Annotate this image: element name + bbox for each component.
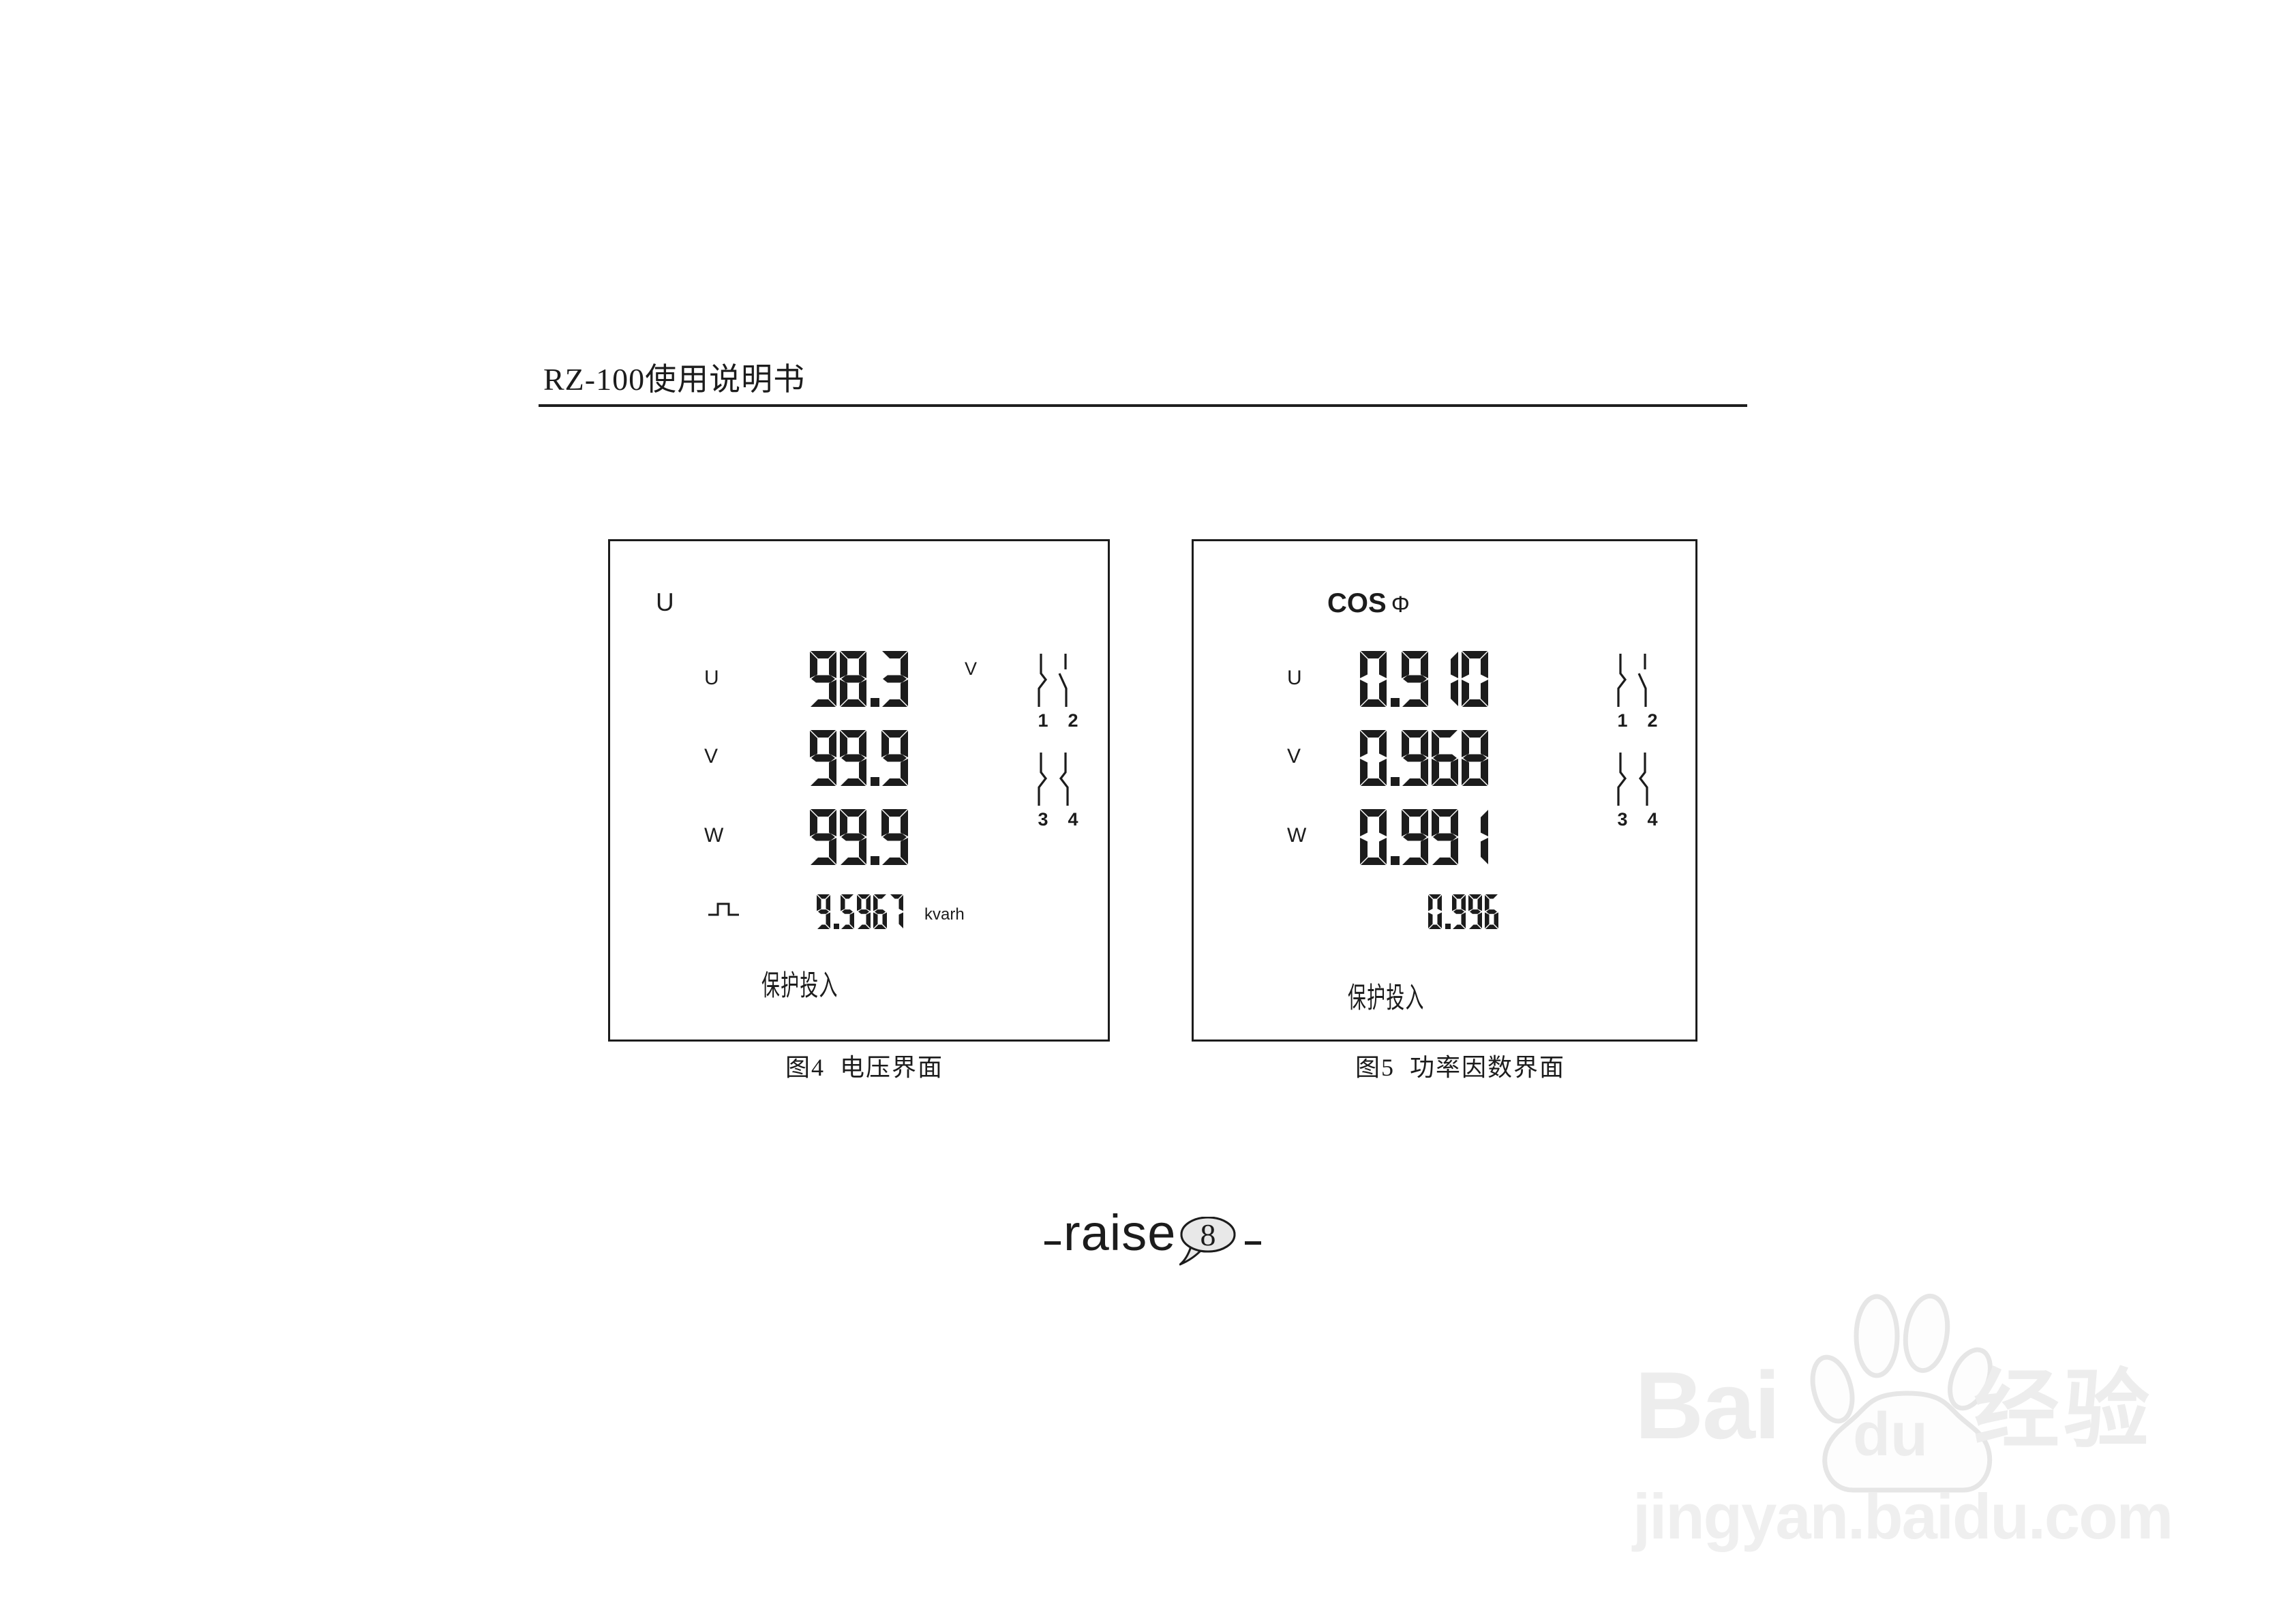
meter-panel-power-factor: COS Φ U V W 保护投入 1 2	[1192, 539, 1697, 1042]
figure4-caption: 图4 电压界面	[785, 1055, 943, 1080]
header-rule	[539, 404, 1747, 407]
seven-seg-display-u	[1360, 651, 1492, 707]
meter-panel-voltage: U U V V W kvarh 保护投入 1 2	[608, 539, 1110, 1042]
switch-contact-icons-34	[1031, 752, 1083, 806]
logo-left-dash	[1044, 1241, 1061, 1245]
switch-label-3: 3	[1614, 810, 1631, 829]
switch-group-34: 3 4	[1611, 752, 1663, 829]
switch-contact-icons-12	[1031, 653, 1083, 708]
switch-group-12: 1 2	[1031, 653, 1083, 730]
manual-page: RZ-100使用说明书 U U V V W kvarh 保护投入 1	[0, 0, 2296, 1623]
switch-contact-icons-34	[1611, 752, 1663, 806]
status-area: 保护投入	[761, 971, 881, 1002]
average-display	[1428, 894, 1501, 929]
screen-title: COS	[1327, 590, 1387, 617]
unit-label-volts: V	[965, 660, 977, 678]
seven-seg-display-w	[1360, 809, 1492, 865]
energy-display	[817, 894, 906, 929]
brand-logo: raise 8	[1043, 1205, 1268, 1270]
switch-group-34: 3 4	[1031, 752, 1083, 829]
status-text: 保护投入	[761, 971, 839, 1002]
seven-seg-display-v	[1360, 730, 1492, 786]
watermark-url: jingyan.baidu.com	[1633, 1485, 2172, 1549]
phase-label-w: W	[704, 825, 723, 846]
screen-title-area: COS Φ	[1327, 590, 1410, 617]
switch-label-1: 1	[1035, 712, 1051, 730]
brand-text: raise	[1063, 1208, 1176, 1258]
switch-label-3: 3	[1035, 810, 1051, 829]
screen-title: U	[656, 590, 674, 615]
energy-unit: kvarh	[924, 907, 965, 923]
page-title: RZ-100使用说明书	[543, 364, 805, 395]
switch-label-4: 4	[1644, 810, 1661, 829]
watermark-bai-text: Bai	[1635, 1358, 1779, 1453]
status-area: 保护投入	[1348, 983, 1468, 1014]
page-number-bubble: 8	[1179, 1217, 1242, 1270]
figure5-caption: 图5 功率因数界面	[1355, 1055, 1565, 1080]
status-text: 保护投入	[1348, 983, 1425, 1014]
watermark-du-text: du	[1853, 1404, 1928, 1466]
switch-contact-icons-12	[1611, 653, 1663, 708]
switch-label-4: 4	[1065, 810, 1081, 829]
watermark-jingyan-text: 经验	[1974, 1367, 2154, 1453]
switch-label-2: 2	[1644, 712, 1661, 730]
phase-label-u: U	[704, 668, 719, 688]
phi-symbol: Φ	[1391, 593, 1410, 616]
phase-label-v: V	[704, 746, 718, 767]
logo-right-dash	[1245, 1241, 1261, 1245]
pulse-icon	[708, 902, 740, 917]
page-number: 8	[1200, 1217, 1216, 1252]
seven-seg-display-u	[810, 651, 911, 707]
switch-group-12: 1 2	[1611, 653, 1663, 730]
seven-seg-display-v	[810, 730, 911, 786]
phase-label-w: W	[1287, 825, 1306, 846]
switch-label-1: 1	[1614, 712, 1631, 730]
phase-label-v: V	[1287, 746, 1301, 767]
switch-label-2: 2	[1065, 712, 1081, 730]
watermark: Bai du 经验 jingyan.baidu.com	[1629, 1268, 2284, 1568]
seven-seg-display-w	[810, 809, 911, 865]
phase-label-u: U	[1287, 668, 1302, 688]
